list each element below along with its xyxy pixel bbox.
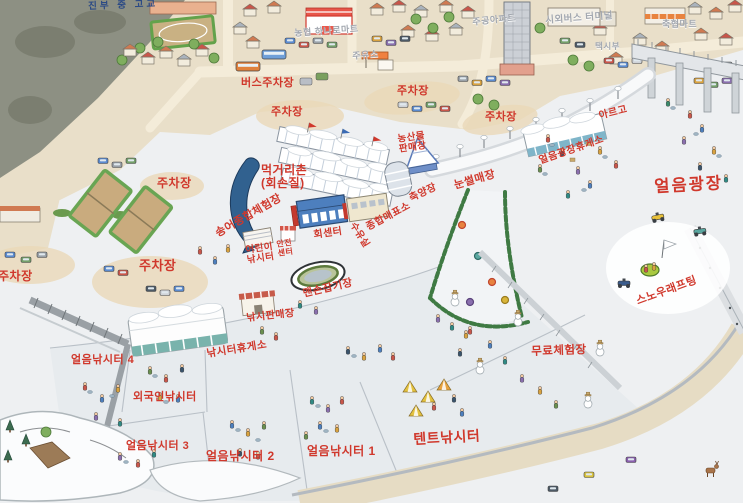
tackle-shop-building: [239, 290, 277, 316]
hanaro-mart-building: [306, 8, 352, 34]
safety-center-hut: [280, 226, 296, 241]
map-illustration: [0, 0, 743, 503]
chukhyup-mart-building: [645, 8, 685, 24]
festival-map: 진부 중 고교버스주차장농협 하나로마트주유소주공아파트시외버스 터미널축협마트…: [0, 0, 743, 503]
terminal-building: [548, 8, 600, 26]
apartment-tower: [500, 2, 534, 75]
